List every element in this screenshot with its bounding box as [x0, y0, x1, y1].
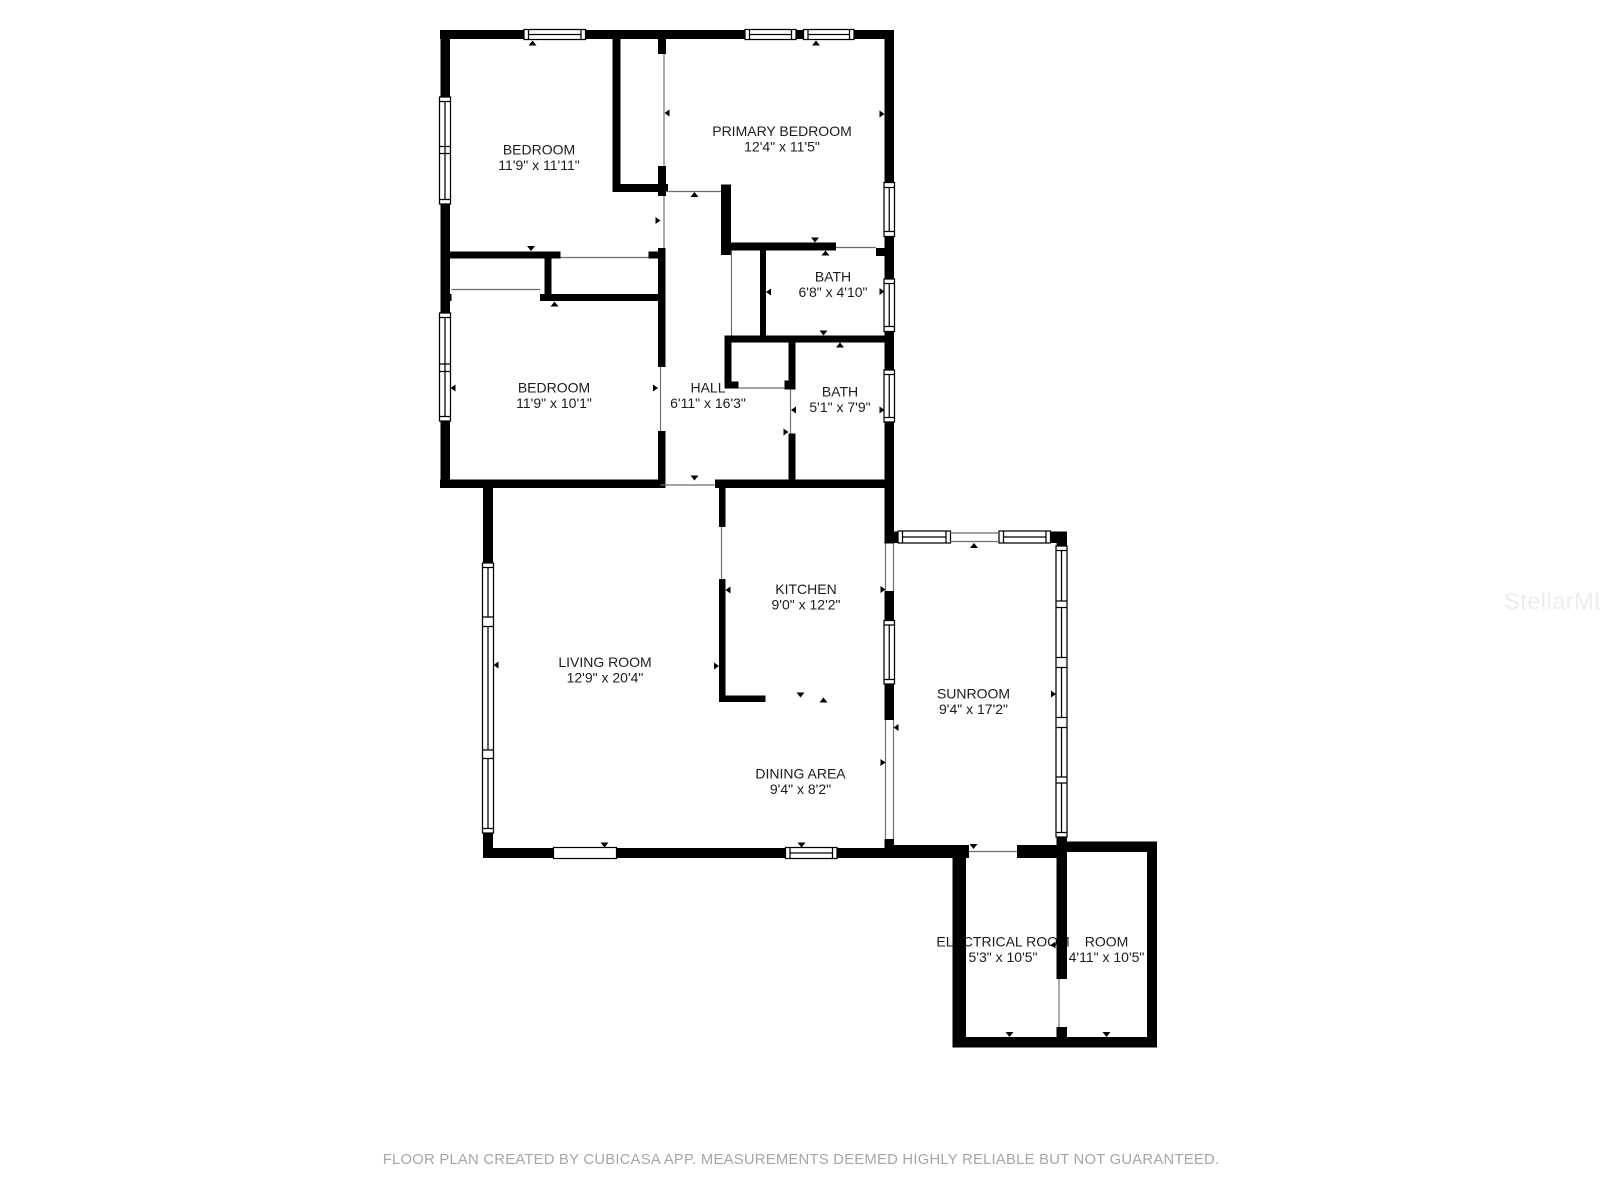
- svg-text:BATH: BATH: [822, 384, 858, 400]
- svg-text:SUNROOM: SUNROOM: [937, 686, 1010, 702]
- svg-text:6'11" x 16'3": 6'11" x 16'3": [670, 395, 746, 411]
- svg-text:LIVING ROOM: LIVING ROOM: [558, 654, 651, 670]
- svg-text:12'4" x 11'5": 12'4" x 11'5": [744, 139, 820, 155]
- svg-text:9'4" x 17'2": 9'4" x 17'2": [939, 701, 1008, 717]
- svg-text:FLOOR PLAN CREATED BY CUBICASA: FLOOR PLAN CREATED BY CUBICASA APP. MEAS…: [383, 1152, 1220, 1168]
- svg-text:KITCHEN: KITCHEN: [775, 581, 836, 597]
- svg-text:9'0" x 12'2": 9'0" x 12'2": [772, 597, 841, 613]
- svg-text:BEDROOM: BEDROOM: [518, 380, 590, 396]
- svg-text:4'11" x 10'5": 4'11" x 10'5": [1069, 949, 1145, 965]
- svg-text:DINING AREA: DINING AREA: [755, 766, 846, 782]
- svg-text:5'3" x 10'5": 5'3" x 10'5": [969, 949, 1038, 965]
- svg-text:HALL: HALL: [690, 380, 725, 396]
- svg-text:12'9" x 20'4": 12'9" x 20'4": [567, 670, 644, 686]
- svg-text:5'1" x 7'9": 5'1" x 7'9": [809, 399, 870, 415]
- svg-text:9'4" x 8'2": 9'4" x 8'2": [770, 781, 831, 797]
- svg-text:6'8" x 4'10": 6'8" x 4'10": [799, 284, 868, 300]
- svg-text:StellarMLS: StellarMLS: [1504, 588, 1600, 614]
- svg-text:11'9" x 11'11": 11'9" x 11'11": [498, 157, 579, 173]
- svg-text:11'9" x 10'1": 11'9" x 10'1": [516, 395, 592, 411]
- svg-text:BATH: BATH: [815, 269, 851, 285]
- svg-text:ROOM: ROOM: [1085, 934, 1129, 950]
- svg-text:BEDROOM: BEDROOM: [503, 142, 575, 158]
- svg-text:PRIMARY BEDROOM: PRIMARY BEDROOM: [712, 123, 852, 139]
